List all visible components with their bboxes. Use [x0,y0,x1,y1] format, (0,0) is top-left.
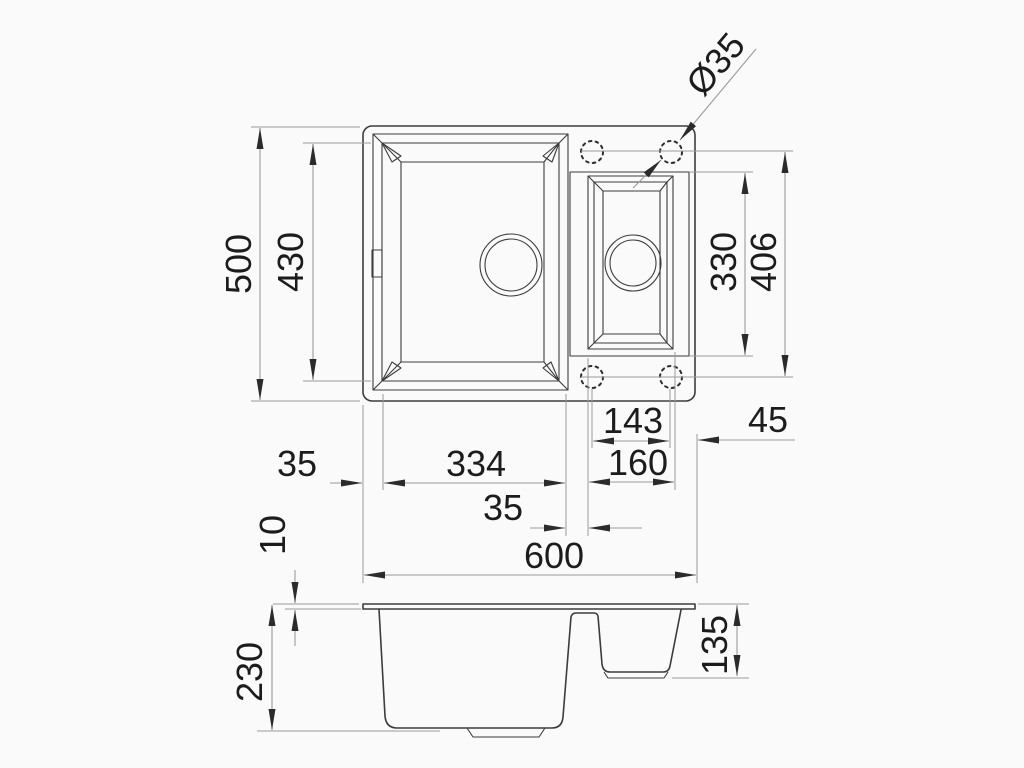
dim-35-left: 35 [277,443,362,484]
dim-430-label: 430 [270,232,311,292]
main-bowl [372,134,568,390]
tap-hole-icon [581,141,603,163]
dim-330-label: 330 [703,232,744,292]
sink-outline [363,126,695,401]
dim-35-divider-label: 35 [483,487,523,528]
dim-160: 160 [589,442,674,483]
dimensions: 500 430 330 406 143 45 [218,25,795,731]
dim-dia35-label: Ø35 [678,25,753,103]
dim-330: 330 [703,173,745,355]
section-view [363,604,695,737]
main-drain-outer [480,234,542,296]
drawing-svg: 500 430 330 406 143 45 [0,0,1024,768]
dim-10: 10 [252,515,295,646]
dim-35-left-label: 35 [277,443,317,484]
small-bowl [588,176,673,349]
dim-160-label: 160 [608,442,668,483]
dim-334-label: 334 [446,443,506,484]
dim-334: 334 [384,443,565,484]
dim-230: 230 [229,605,272,730]
tap-hole-icon [660,141,682,163]
dim-143: 143 [593,400,669,441]
dim-600: 600 [364,535,696,576]
small-drain-outer [605,235,661,291]
dim-600-label: 600 [524,535,584,576]
dim-35-divider: 35 [483,487,642,528]
dim-45: 45 [698,399,795,440]
main-drain-inner [485,239,537,291]
dim-135-label: 135 [694,615,735,675]
small-drain-recess [604,672,668,678]
dim-143-label: 143 [603,400,663,441]
main-bowl-corner-lines [373,134,568,390]
plan-view [363,126,695,401]
dim-500: 500 [218,128,260,400]
dim-406: 406 [743,152,785,376]
dim-500-label: 500 [218,234,259,294]
dim-406-label: 406 [743,232,784,292]
dim-45-label: 45 [748,399,788,440]
main-drain-recess [467,728,545,737]
sink-technical-drawing: 500 430 330 406 143 45 [0,0,1024,768]
dim-230-label: 230 [229,642,270,702]
small-drain-inner [610,240,656,286]
section-bowls-profile [379,609,681,728]
section-rim [363,604,695,609]
dim-10-label: 10 [252,515,293,555]
dim-135: 135 [694,605,737,676]
dim-430: 430 [270,144,313,380]
